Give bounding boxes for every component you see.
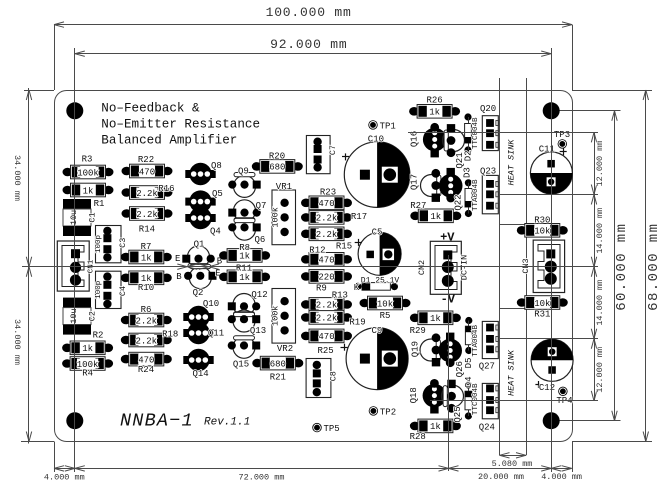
svg-text:14.000 mm: 14.000 mm [595, 208, 605, 254]
svg-text:No–Feedback &: No–Feedback & [101, 101, 200, 115]
svg-text:R28: R28 [410, 432, 426, 442]
svg-text:Q20: Q20 [480, 104, 496, 114]
svg-text:68.000 mm: 68.000 mm [646, 223, 662, 311]
svg-text:Q15: Q15 [233, 360, 249, 370]
svg-text:Q24: Q24 [479, 423, 495, 433]
svg-text:Q8: Q8 [211, 161, 222, 171]
svg-text:DC-IN: DC-IN [459, 255, 469, 281]
svg-text:Q19: Q19 [411, 341, 421, 357]
svg-text:R31: R31 [534, 310, 550, 320]
svg-text:1k: 1k [82, 344, 93, 354]
svg-text:TP4: TP4 [556, 396, 572, 406]
svg-text:C12: C12 [539, 383, 555, 393]
svg-text:1k: 1k [83, 186, 94, 196]
svg-text:TP5: TP5 [324, 424, 340, 434]
svg-text:C3: C3 [118, 238, 128, 248]
svg-text:B: B [176, 272, 182, 282]
svg-text:C8: C8 [329, 371, 339, 381]
svg-text:12.000 mm: 12.000 mm [595, 347, 605, 393]
svg-text:680: 680 [270, 359, 286, 369]
svg-text:R9: R9 [316, 284, 327, 294]
svg-text:TP3: TP3 [554, 130, 570, 140]
svg-text:1k: 1k [430, 314, 441, 324]
svg-text:R2: R2 [93, 331, 104, 341]
svg-text:R30: R30 [534, 216, 550, 226]
svg-text:R14: R14 [139, 225, 155, 235]
svg-text:R18: R18 [162, 330, 178, 340]
svg-text:VR1: VR1 [276, 182, 292, 192]
svg-text:R12: R12 [309, 246, 325, 256]
svg-text:14.000 mm: 14.000 mm [595, 280, 605, 326]
svg-text:10k: 10k [534, 227, 550, 237]
svg-text:R1: R1 [94, 199, 105, 209]
svg-text:Rev.1.1: Rev.1.1 [204, 417, 250, 429]
svg-text:72.000 mm: 72.000 mm [239, 473, 285, 483]
svg-text:R3: R3 [82, 155, 93, 165]
svg-text:92.000 mm: 92.000 mm [270, 37, 347, 52]
svg-text:R6: R6 [141, 305, 152, 315]
svg-text:5.080 mm: 5.080 mm [492, 459, 533, 469]
svg-text:Q6: Q6 [254, 235, 265, 245]
svg-text:680: 680 [269, 163, 285, 173]
svg-text:R8: R8 [239, 243, 250, 253]
svg-text:C5: C5 [372, 228, 383, 238]
svg-text:R13: R13 [332, 291, 348, 301]
svg-text:K: K [354, 283, 360, 293]
svg-text:HEAT SINK: HEAT SINK [507, 139, 517, 186]
svg-text:CN2: CN2 [417, 260, 427, 275]
svg-text:100.000 mm: 100.000 mm [266, 5, 352, 20]
svg-text:R22: R22 [138, 155, 154, 165]
svg-text:Q12: Q12 [251, 290, 267, 300]
svg-text:100p: 100p [95, 281, 103, 299]
svg-text:100p: 100p [95, 235, 103, 253]
svg-text:1k: 1k [239, 273, 250, 283]
svg-text:100k: 100k [271, 207, 281, 227]
svg-text:34.000 mm: 34.000 mm [12, 155, 22, 201]
svg-text:C2: C2 [88, 311, 98, 321]
svg-text:E: E [175, 254, 180, 264]
svg-text:C1: C1 [88, 212, 98, 222]
svg-text:Q16: Q16 [410, 131, 420, 147]
svg-text:2.2k: 2.2k [135, 336, 157, 346]
svg-text:220: 220 [318, 273, 334, 283]
svg-text:Q9: Q9 [238, 166, 249, 176]
svg-text:No–Emitter Resistance: No–Emitter Resistance [101, 117, 260, 131]
svg-text:1k: 1k [430, 422, 441, 432]
svg-text:470: 470 [318, 256, 334, 266]
svg-text:470: 470 [318, 332, 334, 342]
svg-text:Q2: Q2 [193, 288, 204, 298]
svg-text:TP1: TP1 [380, 121, 396, 131]
svg-text:Q7: Q7 [256, 201, 267, 211]
svg-text:Q17: Q17 [409, 174, 419, 190]
svg-text:VR2: VR2 [277, 344, 293, 354]
svg-text:Q14: Q14 [192, 369, 208, 379]
svg-text:TTA004B: TTA004B [472, 325, 480, 357]
svg-text:1k: 1k [430, 212, 441, 222]
svg-text:HEAT SINK: HEAT SINK [507, 349, 517, 396]
svg-text:2.2k: 2.2k [316, 214, 338, 224]
svg-text:470: 470 [139, 167, 155, 177]
svg-text:Q23: Q23 [480, 167, 496, 177]
svg-text:34.000 mm: 34.000 mm [12, 319, 22, 365]
svg-text:C11: C11 [539, 145, 555, 155]
svg-text:Q4: Q4 [210, 227, 221, 237]
svg-text:2.2k: 2.2k [135, 316, 157, 326]
svg-text:4.000 mm: 4.000 mm [44, 473, 85, 483]
svg-text:R24: R24 [138, 365, 154, 375]
svg-text:Q25: Q25 [453, 406, 463, 422]
svg-text:R7: R7 [141, 242, 152, 252]
svg-text:470: 470 [318, 199, 334, 209]
svg-text:R21: R21 [270, 373, 286, 383]
svg-text:10k: 10k [377, 299, 393, 309]
svg-text:Q11: Q11 [208, 329, 224, 339]
svg-text:R16: R16 [158, 184, 174, 194]
svg-text:Q13: Q13 [250, 326, 266, 336]
svg-text:R23: R23 [320, 187, 336, 197]
svg-text:R17: R17 [351, 212, 367, 222]
svg-text:100k: 100k [271, 306, 281, 326]
svg-text:C7: C7 [328, 145, 338, 155]
svg-text:R4: R4 [82, 369, 93, 379]
svg-text:C9: C9 [371, 326, 382, 336]
svg-text:4.000 mm: 4.000 mm [541, 472, 582, 482]
svg-text:TTA004B: TTA004B [472, 179, 480, 211]
svg-text:R11: R11 [236, 263, 252, 273]
svg-text:R27: R27 [410, 201, 426, 211]
svg-text:1k: 1k [429, 108, 440, 118]
svg-text:R26: R26 [426, 96, 442, 106]
svg-text:Balanced Amplifier: Balanced Amplifier [101, 133, 237, 147]
svg-text:2.2k: 2.2k [136, 189, 158, 199]
svg-text:60.000 mm: 60.000 mm [614, 223, 630, 311]
svg-text:10k: 10k [534, 299, 550, 309]
svg-text:D5: D5 [464, 358, 474, 369]
svg-text:12.000 mm: 12.000 mm [595, 141, 605, 187]
svg-text:D1 25.1V: D1 25.1V [361, 276, 400, 285]
svg-text:2.2k: 2.2k [316, 314, 338, 324]
svg-text:1k: 1k [141, 253, 152, 263]
svg-text:C4: C4 [118, 286, 128, 296]
svg-text:TP2: TP2 [380, 407, 396, 417]
svg-text:TTC004B: TTC004B [472, 383, 480, 415]
svg-text:R10: R10 [138, 283, 154, 293]
svg-text:470: 470 [138, 355, 154, 365]
svg-text:NNBA−1: NNBA−1 [120, 411, 194, 432]
svg-text:Q5: Q5 [212, 189, 223, 199]
svg-text:R29: R29 [410, 326, 426, 336]
svg-text:D3: D3 [462, 167, 472, 178]
svg-text:R5: R5 [380, 311, 391, 321]
svg-text:20.000 mm: 20.000 mm [478, 472, 524, 482]
svg-text:D2: D2 [463, 150, 473, 161]
svg-text:Q1: Q1 [194, 240, 205, 250]
svg-text:R19: R19 [349, 318, 365, 328]
svg-text:2.2k: 2.2k [316, 230, 338, 240]
svg-text:R20: R20 [269, 151, 285, 161]
svg-text:R15: R15 [336, 242, 352, 252]
svg-text:Q18: Q18 [409, 387, 419, 403]
svg-text:C10: C10 [368, 135, 384, 145]
svg-text:2.2k: 2.2k [316, 301, 338, 311]
svg-text:Q27: Q27 [479, 361, 495, 371]
svg-text:+V: +V [440, 230, 455, 244]
svg-text:R25: R25 [317, 346, 333, 356]
svg-text:1k: 1k [239, 252, 250, 262]
svg-text:100k: 100k [77, 168, 99, 178]
svg-text:Q22: Q22 [454, 194, 464, 210]
svg-text:2.2k: 2.2k [136, 210, 158, 220]
svg-text:Q10: Q10 [203, 299, 219, 309]
